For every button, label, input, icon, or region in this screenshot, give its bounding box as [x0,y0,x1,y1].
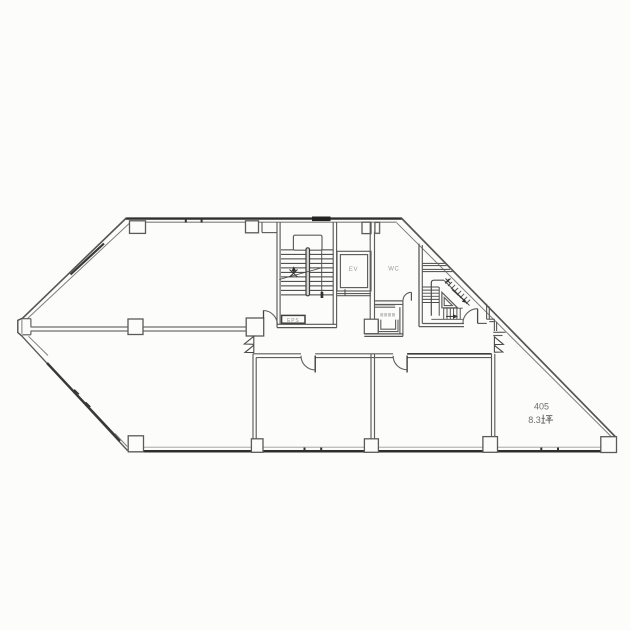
svg-text:8.3: 8.3 [528,415,541,425]
svg-text:EPS: EPS [287,318,299,324]
svg-text:WC: WC [388,266,399,272]
svg-text:EV: EV [349,267,358,273]
svg-text:405: 405 [534,401,549,411]
